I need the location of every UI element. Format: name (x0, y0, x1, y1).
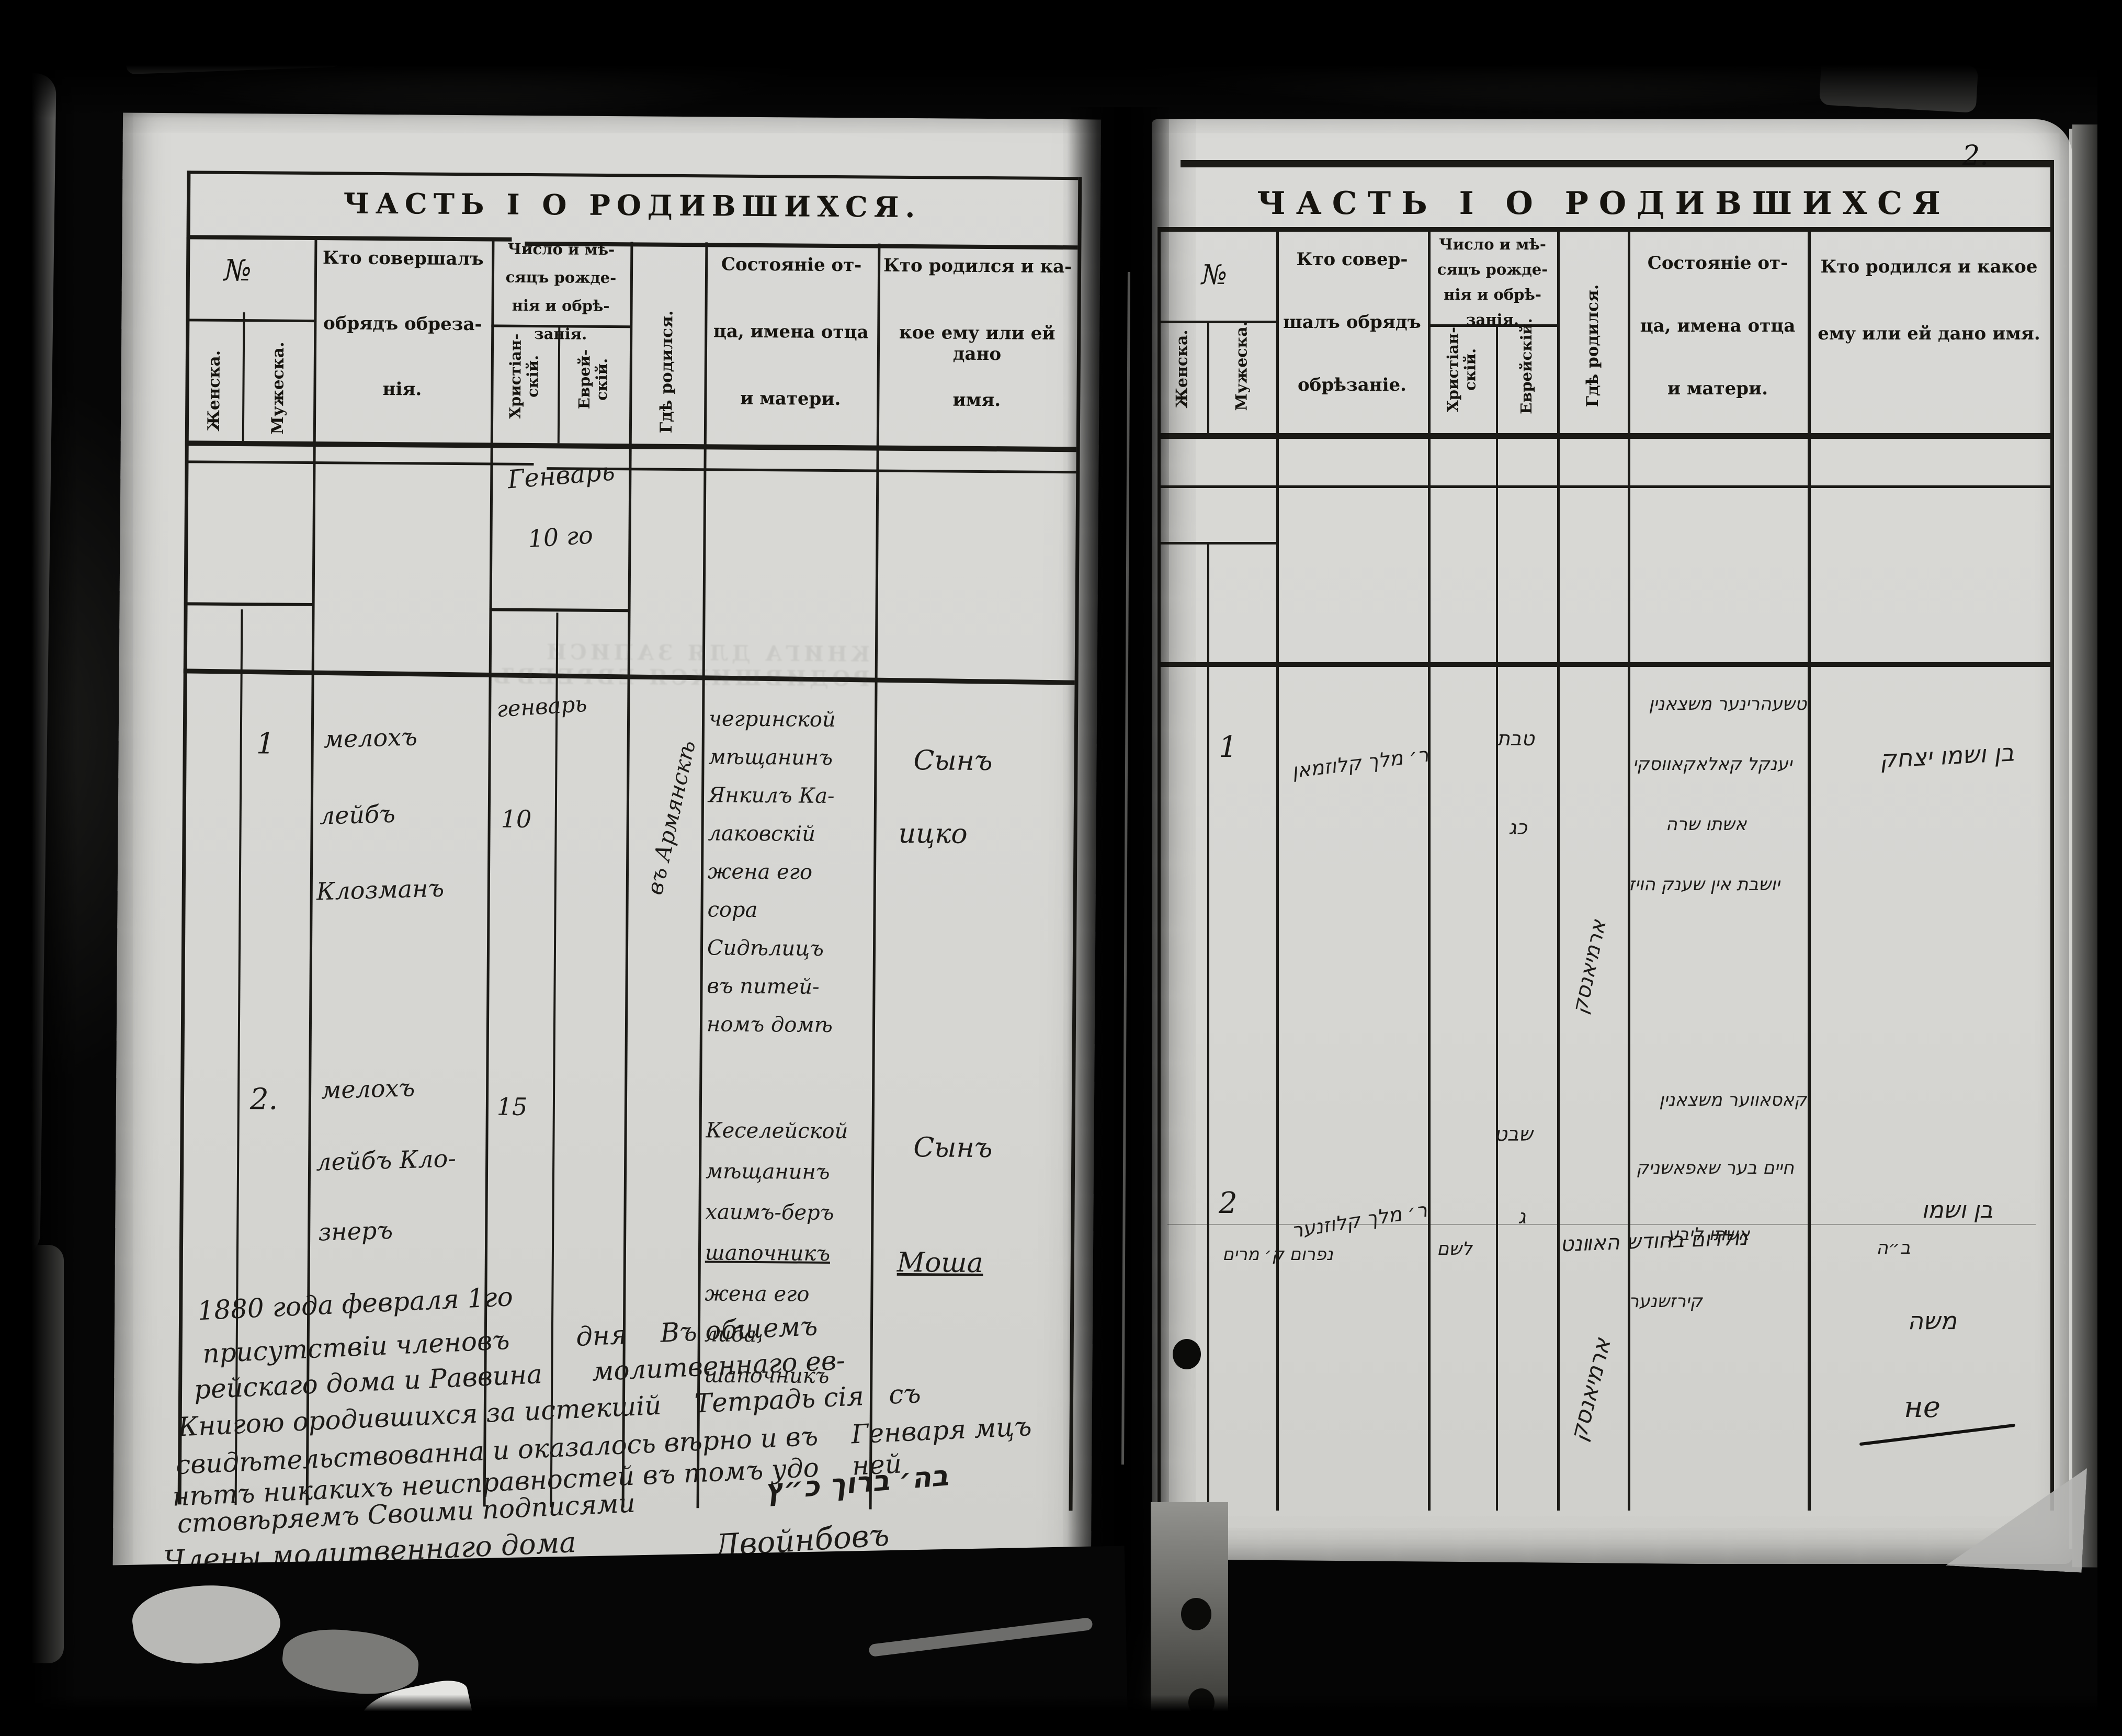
entry-no: 1 (1219, 730, 1238, 764)
column-line (178, 171, 191, 1504)
column-header-performer: Кто совершалъ (314, 247, 492, 269)
entry-no: 2 (1219, 1186, 1238, 1220)
table-rule (185, 460, 534, 466)
column-header-who-born: имя. (877, 389, 1076, 412)
entry-performer-hebrew: ר׳ מלך קלוזמאן (1276, 743, 1429, 784)
table-rule-heavy (1158, 662, 2050, 667)
gutter-shadow (1067, 107, 1169, 1736)
entry-performer: мелохъ (323, 722, 417, 753)
entry-child-name-hebrew: משה (1908, 1307, 1957, 1335)
column-line (1207, 321, 1209, 433)
left-page: ЧАСТЬ I О РОДИВШИХСЯ. № Женска. Мужеска.… (112, 113, 1101, 1637)
column-header-female: Женска. (1173, 293, 1192, 409)
entry-father-status-hebrew: קירזשנער (1629, 1291, 1786, 1312)
entry-father-status: жена его (708, 859, 812, 884)
entry-father-status: жена его (705, 1281, 809, 1306)
column-header-performer: обрядъ обреза- (314, 313, 491, 335)
table-rule (187, 171, 1078, 180)
entry-child-name: ицко (898, 818, 968, 850)
table-rule-heavy (1158, 433, 2050, 439)
entry-where-born-diagonal: ארמיאנסק (1565, 1335, 1616, 1444)
entry-father-status: хаимъ-беръ (705, 1200, 834, 1225)
entry-father-status: мѣщанинъ (706, 1159, 830, 1184)
entry-jewish-month: טבת (1497, 727, 1535, 750)
frame-right (2097, 0, 2122, 1736)
entry-where-born: въ Армянскѣ (642, 738, 700, 897)
entry-performer: лейбъ Кло- (315, 1144, 456, 1176)
entry-father-status: Янкилъ Ка- (708, 783, 835, 808)
column-header-jewish: Еврей- скій. (576, 330, 611, 429)
entry-jewish-day: כג (1508, 816, 1527, 839)
column-line (1628, 228, 1630, 1511)
column-header-father: ца, имена отца (705, 321, 877, 343)
page-edge-stack (2072, 124, 2097, 1573)
column-line (242, 312, 245, 441)
frame-left (0, 0, 78, 1736)
entry-performer: мелохъ (321, 1073, 415, 1104)
column-header-date: Число и мѣ- (1428, 235, 1557, 253)
ghost-stamp: КНИГА ДЛЯ ЗАПИСИ РОДИВШИХСЯ ЕВРЕЕВЪ (325, 638, 870, 691)
column-header-jewish: Еврейскій. (1517, 303, 1535, 429)
entry-no: 1 (256, 727, 275, 761)
entry-father-status-hebrew: קאסאווער משצאנין (1629, 1090, 1807, 1110)
column-header-father: и матери. (1628, 378, 1808, 399)
margin-mark: не (1904, 1390, 1941, 1424)
page-number: 2. (1962, 140, 1989, 172)
table-rule (1158, 485, 2050, 488)
entry-father-status-hebrew: טשעהרינער משצאנין (1629, 694, 1807, 714)
column-line (235, 609, 243, 1505)
scanned-register-spread: ЧАСТЬ I О РОДИВШИХСЯ. № Женска. Мужеска.… (0, 0, 2122, 1736)
entry-day: 10 (501, 805, 532, 833)
column-header-male: Мужеска. (1233, 286, 1251, 411)
column-line (1207, 542, 1209, 1511)
column-line (1496, 324, 1498, 1511)
frame-top (0, 0, 2122, 118)
entry-father-status: Сидѣлицъ (707, 936, 824, 961)
table-rule-heavy (1181, 160, 2050, 167)
column-header-date: сяцъ рожде- (1428, 260, 1557, 278)
column-header-father: ца, имена отца (1628, 315, 1808, 336)
column-header-christian: Христіан- скій. (507, 316, 542, 436)
entry-month: генварь (496, 691, 588, 722)
column-line (1557, 228, 1560, 1511)
column-line (1808, 228, 1811, 1511)
entry-father-status: чегринской (709, 707, 836, 732)
entry-father-status: номъ домѣ (707, 1012, 833, 1037)
column-header-male: Мужеска. (268, 309, 288, 434)
entry-father-status: въ питей- (707, 974, 819, 999)
bottom-note-fragment: נפרום ק׳ מרים (1222, 1244, 1333, 1264)
table-rule (547, 467, 1076, 473)
entry-child: Сынъ (913, 745, 992, 777)
column-line (622, 242, 633, 1507)
entry-father-status-hebrew: יושבת אין שענק הויז (1629, 874, 1801, 895)
ink-blot (1181, 1598, 1211, 1630)
entry-day: 15 (497, 1093, 528, 1121)
column-header-performer: шалъ обрядъ (1276, 312, 1428, 333)
column-header-no: № (224, 254, 252, 288)
column-header-christian: Христіан- скій. (1445, 309, 1480, 429)
column-header-who-born: Кто родился и какое (1808, 256, 2050, 277)
certification-line: 1880 года февраля 1го (197, 1281, 514, 1326)
column-line (869, 244, 881, 1510)
entry-performer: знеръ (318, 1216, 393, 1246)
entry-father-status: шапочникъ (705, 1241, 830, 1266)
bottom-note-fragment: נולדום בחודש האװנט (1512, 1224, 1795, 1258)
entry-child-name: Моша (897, 1247, 983, 1279)
column-header-who-born: кое ему или ей дано (877, 322, 1077, 366)
column-header-where-born: Гдѣ родился. (657, 286, 677, 458)
table-rule (184, 602, 312, 606)
entry-performer: Клозманъ (316, 874, 445, 906)
column-line (1276, 228, 1279, 1511)
entry-father-status: лаковскій (708, 821, 815, 846)
table-rule (490, 608, 628, 612)
ink-blot (1173, 1339, 1201, 1369)
entry-where-born-diagonal: ארמיאנסק (1568, 917, 1611, 1016)
column-header-performer: нія. (313, 378, 491, 400)
column-header-who-born: Кто родился и ка- (878, 255, 1077, 278)
entry-performer-hebrew: ר׳ מלך קלוזנער (1270, 1198, 1428, 1245)
right-page: ЧАСТЬ I О РОДИВШИХСЯ № Женска. Мужеска. … (1152, 119, 2072, 1564)
column-header-performer: обрѣзаніе. (1276, 375, 1428, 395)
entry-performer: лейбъ (319, 800, 395, 830)
column-header-father: Состояніе от- (1628, 253, 1808, 274)
column-header-date: нія и обрѣ- (1428, 286, 1557, 303)
page-title: ЧАСТЬ I О РОДИВШИХСЯ. (187, 185, 1078, 225)
column-line (2050, 160, 2054, 1511)
column-line (1428, 228, 1431, 1511)
table-rule (1158, 542, 1276, 544)
column-line (483, 241, 495, 1506)
entry-child-hebrew: בן ושמו יצחק (1844, 736, 2049, 775)
entry-father-status: сора (707, 898, 757, 922)
column-header-father: и матери. (704, 388, 877, 410)
frame-bottom (0, 1695, 2122, 1736)
table-rule (186, 235, 512, 241)
entry-father-status-hebrew: חיים בער שאפאשניק (1629, 1158, 1801, 1178)
bottom-note-fragment: ב״ה (1876, 1238, 1911, 1258)
entry-no: 2. (250, 1082, 278, 1116)
entry-father-status: мѣщанинъ (708, 745, 833, 770)
column-header-where-born: Гдѣ родился. (1583, 259, 1602, 432)
entry-jewish-month: שבט (1494, 1122, 1533, 1145)
column-header-date: нія и обрѣ- (491, 296, 630, 315)
column-header-date: Число и мѣ- (492, 240, 630, 258)
column-header-no: № (1201, 259, 1227, 291)
bottom-note-fragment: לשם (1437, 1239, 1472, 1260)
entry-child: Сынъ (913, 1132, 992, 1164)
column-header-father: Состояніе от- (705, 254, 878, 276)
column-header-who-born: ему или ей дано имя. (1808, 323, 2050, 344)
month-heading-day: 10 го (527, 521, 594, 553)
table-rule-heavy (1158, 227, 2050, 232)
page-title: ЧАСТЬ I О РОДИВШИХСЯ (1158, 185, 2050, 222)
column-header-performer: Кто совер- (1276, 249, 1428, 270)
entry-father-status: Кеселейской (706, 1118, 848, 1143)
margin-mark-swash (1859, 1424, 2015, 1446)
column-header-female: Женска. (205, 316, 224, 432)
entry-jewish-day: ג (1518, 1205, 1526, 1228)
column-header-date: сяцъ рожде- (492, 268, 630, 287)
entry-father-status-hebrew: יענקל קאלאקאווסקי (1629, 754, 1796, 775)
entry-father-status-hebrew: אשתו שרה (1641, 814, 1772, 835)
entry-child-hebrew: בן ושמו (1884, 1197, 2030, 1223)
